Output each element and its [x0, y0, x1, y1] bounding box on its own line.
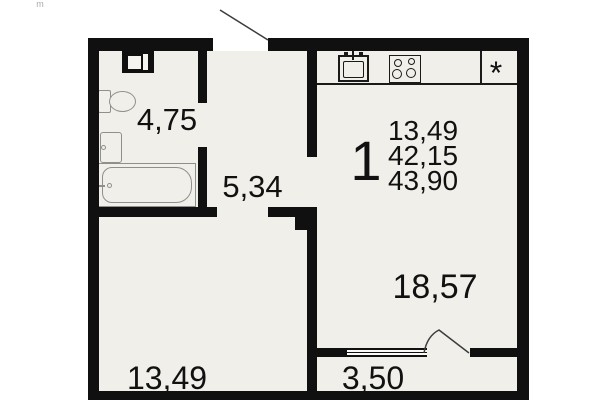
room-label-hallway: 5,34: [205, 171, 300, 202]
wall-room-living: [307, 230, 317, 348]
floor-plan: m *: [0, 0, 600, 400]
wall-corner-block: [295, 207, 317, 230]
wall-bathroom-upper: [198, 51, 207, 103]
fridge-symbol: *: [483, 57, 509, 89]
watermark-text: m: [30, 0, 50, 9]
kitchen-sink-basin-icon: [343, 61, 364, 78]
summary-total-area: 43,90: [378, 168, 468, 193]
kitchen-tap-nub-left-icon: [344, 52, 348, 55]
vent-shaft-cutout-icon: [128, 56, 141, 69]
wall-top-left: [88, 38, 213, 51]
washbasin-tap-icon: [101, 145, 106, 150]
kitchen-tap-nub-right-icon: [359, 52, 363, 55]
summary-areas: 13,49 42,15 43,90: [378, 118, 468, 193]
wall-left: [88, 38, 99, 400]
kitchen-counter-divider: [480, 51, 482, 85]
stove-burner-icon: [408, 58, 415, 65]
room-label-kitchen-living: 18,57: [385, 270, 485, 304]
wall-right: [517, 38, 529, 400]
wall-hallway-kitchen: [307, 51, 317, 157]
room-label-living-room: 13,49: [117, 362, 217, 394]
room-label-balcony: 3,50: [323, 362, 423, 394]
stove-burner-icon: [394, 59, 402, 67]
bathtub-tap-icon: [107, 183, 112, 188]
window-middle-line-icon: [347, 352, 427, 353]
wall-bathroom-bottom: [99, 207, 217, 217]
wall-balcony-right: [470, 348, 517, 357]
wall-top-right: [268, 38, 529, 51]
stove-burner-icon: [406, 68, 416, 78]
entrance-door-leaf-icon: [220, 10, 268, 40]
bathtub-basin-icon: [102, 167, 192, 203]
stove-burner-icon: [392, 69, 402, 79]
wall-balcony-left: [307, 348, 347, 357]
room-label-bathroom: 4,75: [117, 104, 217, 135]
entrance-opening: [213, 38, 268, 51]
vent-shaft-slot-icon: [143, 54, 148, 70]
